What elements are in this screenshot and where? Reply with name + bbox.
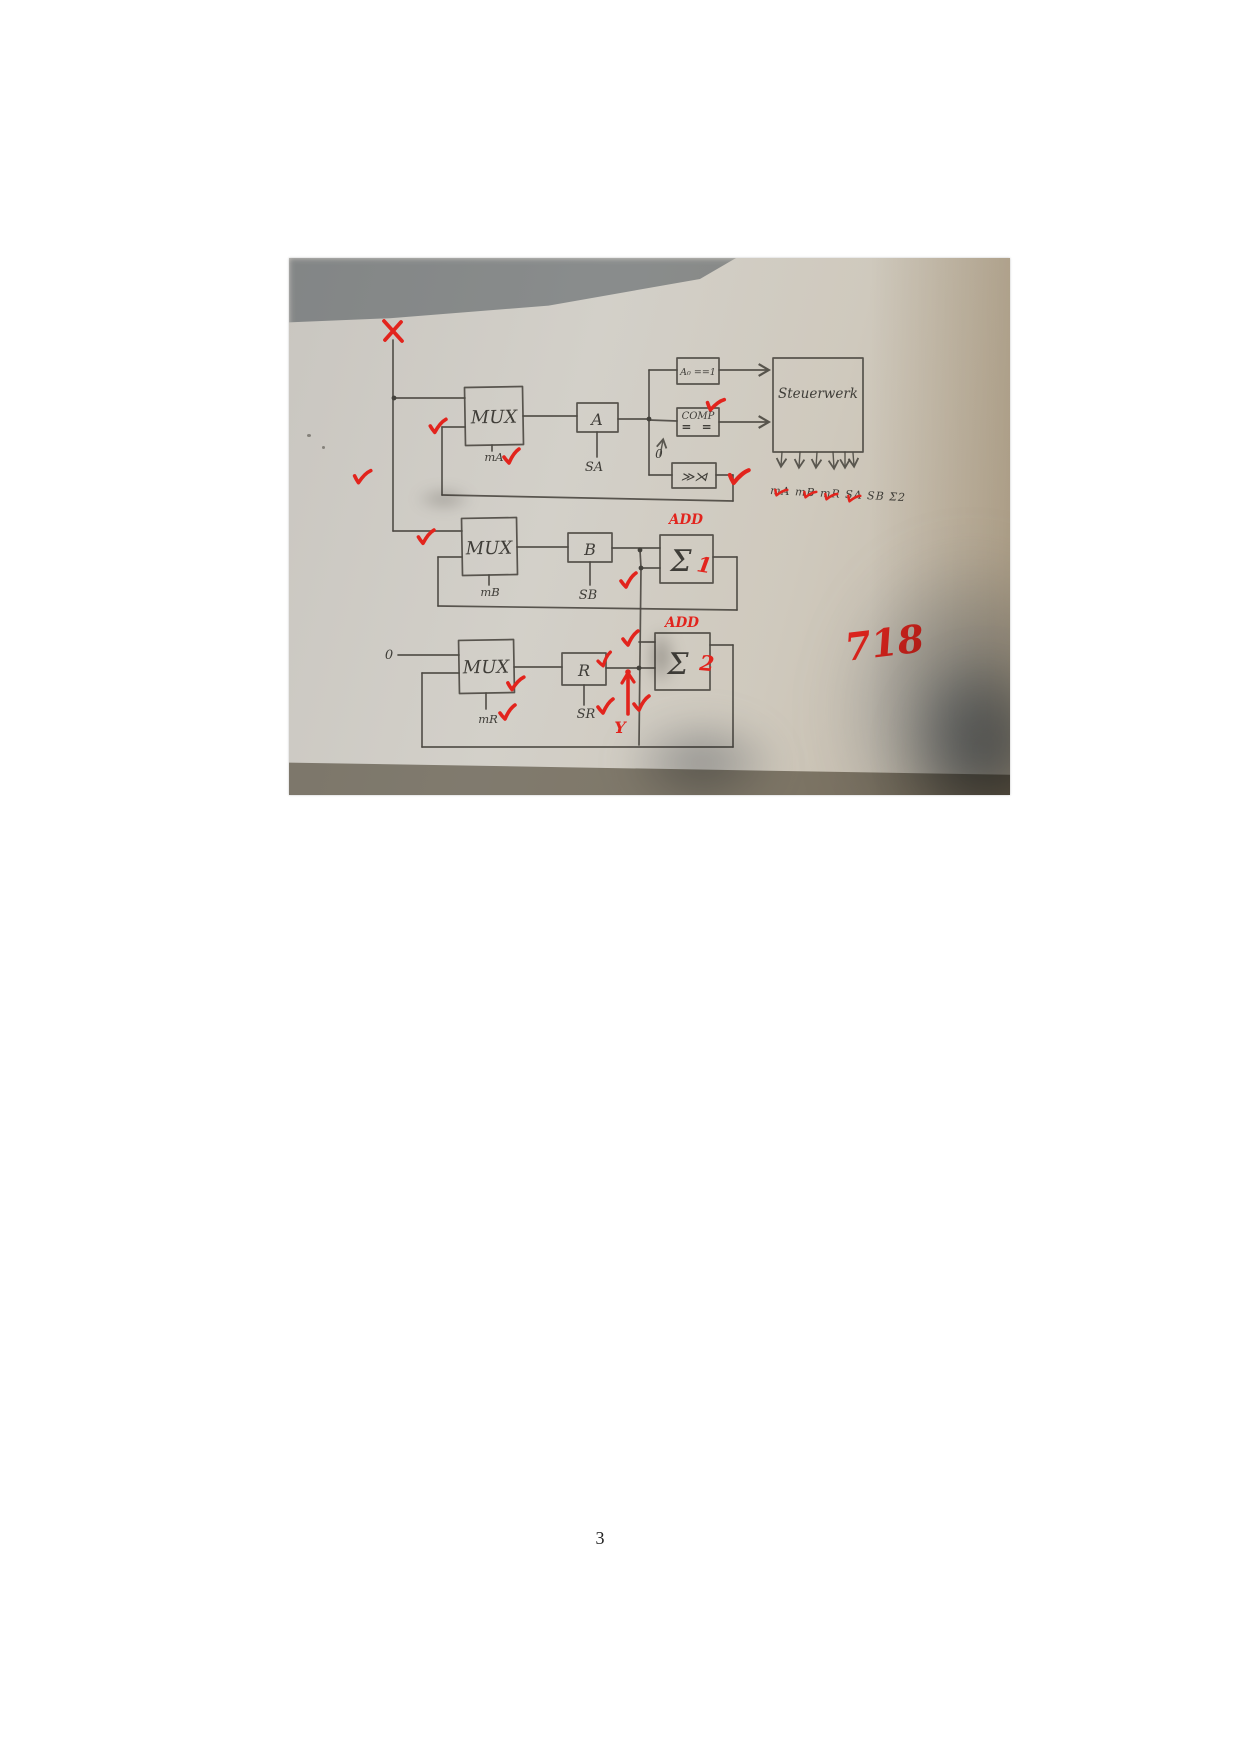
checkmark-icon [507,675,524,691]
x-mark-icon [384,321,402,341]
checkmark-icon [354,468,371,484]
register-b-block: B [568,533,612,562]
mr-label: mR [478,712,498,726]
checkmark-icon [728,466,749,486]
sr-label: SR [577,707,596,722]
add1-annotation: ADD [667,512,703,528]
register-a-block: A [577,403,618,432]
sa-label: SA [585,460,603,475]
sb-label: SB [579,588,597,603]
mux2-label: MUX [465,538,514,560]
control-unit-label: Steuerwerk [778,386,858,402]
register-r-label: R [577,661,590,680]
adder1-sigma: Σ [669,544,692,579]
register-a-label: A [589,410,603,429]
ma-label: mA [484,450,503,464]
blocks: MUX A A₀ ==1 COMP = = ≫⋊ [459,358,863,693]
control-unit-block: Steuerwerk [773,358,863,452]
document-page: MUX A A₀ ==1 COMP = = ≫⋊ [0,0,1241,1754]
adder2-sigma: Σ [666,647,689,682]
mux3-zero-input-label: 0 [385,648,393,663]
mux2-block: MUX [462,518,518,576]
mb-label: mB [480,585,499,599]
checkmark-icon [623,631,638,645]
checkmark-icon [621,573,636,587]
checkmark-icon [634,696,649,710]
comp-zero-input-label: 0 [655,447,663,461]
mux1-block: MUX [464,386,523,445]
circuit-diagram: MUX A A₀ ==1 COMP = = ≫⋊ [289,258,1010,795]
a0-test-label: A₀ ==1 [679,367,716,378]
a0-test-block: A₀ ==1 [677,358,719,384]
y-output-label: Y [614,718,627,737]
y-arrow-icon [622,669,634,714]
scanned-photo: MUX A A₀ ==1 COMP = = ≫⋊ [289,258,1010,795]
adder2-index: 2 [698,650,716,676]
comparator-block: COMP = = [677,408,719,436]
checkmark-icon [597,652,612,666]
paper-speck [322,446,325,449]
shifter-label: ≫⋊ [681,470,709,485]
register-r-block: R [562,653,606,685]
add2-annotation: ADD [663,615,699,631]
mux1-label: MUX [470,407,519,429]
checkmark-icon [430,418,446,433]
shifter-block: ≫⋊ [672,463,716,488]
comparator-equals-label: = = [681,420,714,434]
checkmark-icon [598,699,613,713]
control-output-arrows [781,452,854,468]
signal-labels: mA SA mB SB mR SR 0 0 mA mB mR SA SB Σ2 [385,447,906,726]
page-number: 3 [560,1528,640,1549]
checkmark-icon [504,449,519,463]
paper-speck [307,434,311,437]
checkmark-icon [500,705,515,719]
mux3-block: MUX [459,640,515,694]
mux3-label: MUX [462,657,511,679]
register-b-label: B [583,540,596,559]
adder1-index: 1 [695,551,713,578]
grade-mark: 718 [842,615,926,669]
